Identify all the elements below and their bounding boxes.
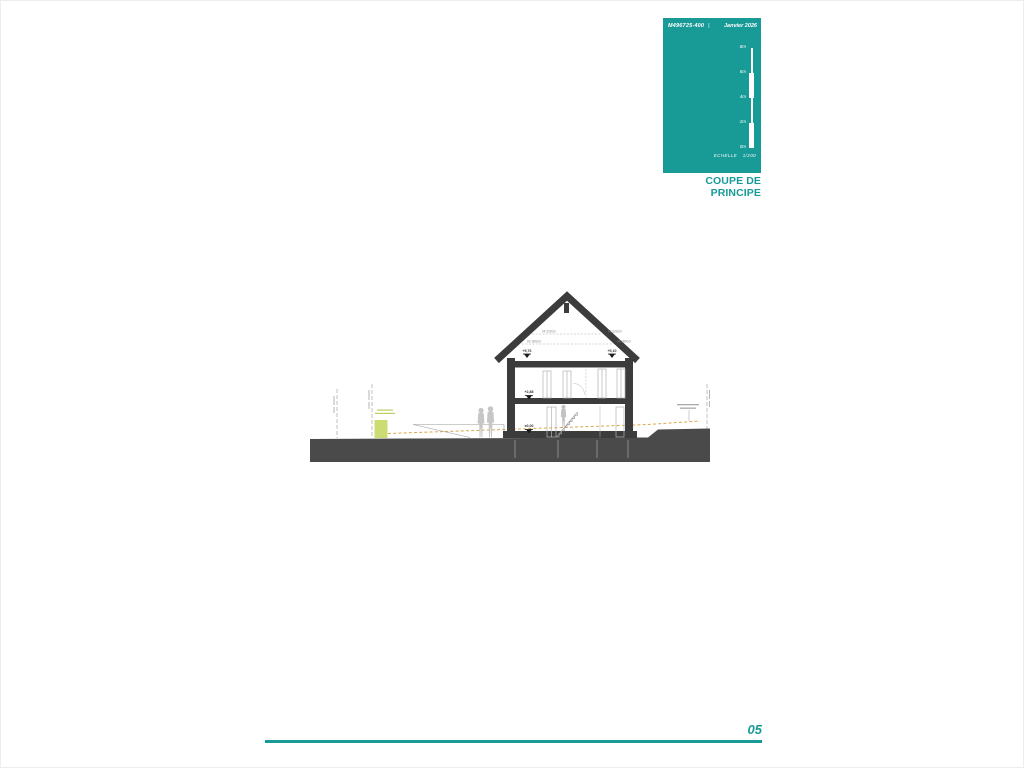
page-number: 05 xyxy=(700,722,762,737)
svg-text:±0,00: ±0,00 xyxy=(525,424,534,428)
hedge-microtext xyxy=(375,410,395,415)
attic-floor-slab xyxy=(515,361,625,368)
scale-caption-value: 1/200 xyxy=(743,153,756,158)
mid-floor-slab xyxy=(515,398,625,404)
chimney-vent xyxy=(564,303,569,313)
svg-text:+2,88: +2,88 xyxy=(524,390,533,394)
project-date: Janvier 2026 xyxy=(724,23,757,29)
scale-tick-label: 8m xyxy=(726,44,746,49)
title-block-header: M496725-400 | Janvier 2026 xyxy=(668,23,757,29)
boundary-lines xyxy=(337,384,707,438)
attic-height-label: Ht 180cm xyxy=(527,340,541,344)
title-block: M496725-400 | Janvier 2026 8m 6m 4m 2m 0… xyxy=(663,18,761,173)
scale-tick-label: 6m xyxy=(726,69,746,74)
scale-bar-segment xyxy=(751,48,753,73)
interior-silhouette xyxy=(561,405,566,428)
project-reference: M496725-400 xyxy=(668,23,704,29)
scale-tick-label: 0m xyxy=(726,144,746,149)
level-marker-eave-right: +5,10 xyxy=(607,349,616,358)
sheet-title: COUPE DE PRINCIPE xyxy=(655,175,761,199)
scale-bar-segment xyxy=(749,73,754,98)
attic-height-label: Ht 180cm xyxy=(617,340,631,344)
scale-caption: ECHELLE 1/200 xyxy=(714,153,756,158)
scale-bar-segment xyxy=(749,123,754,148)
attic-height-label: Ht 220cm xyxy=(542,330,556,334)
section-drawing: Ht 220cm Ht 180cm Ht 220cm Ht 180cm +5,7… xyxy=(0,0,1024,768)
scale-caption-label: ECHELLE xyxy=(714,153,737,158)
scale-bar-segment xyxy=(751,98,753,123)
svg-text:+5,10: +5,10 xyxy=(607,349,616,353)
level-marker-eave-left: +5,76 xyxy=(522,349,531,358)
drawing-sheet: Ht 220cm Ht 180cm Ht 220cm Ht 180cm +5,7… xyxy=(0,0,1024,768)
hedge-block xyxy=(375,420,388,438)
reference-separator: | xyxy=(708,23,709,29)
footer-rule xyxy=(265,740,762,743)
scale-tick-label: 4m xyxy=(726,94,746,99)
scale-tick-label: 2m xyxy=(726,119,746,124)
attic-height-label: Ht 220cm xyxy=(608,330,622,334)
left-wall xyxy=(507,358,515,438)
right-wall xyxy=(625,358,633,438)
svg-text:+5,76: +5,76 xyxy=(522,349,531,353)
scale-bar xyxy=(749,48,754,148)
people-silhouettes xyxy=(478,406,494,437)
terrain-note xyxy=(677,404,699,421)
